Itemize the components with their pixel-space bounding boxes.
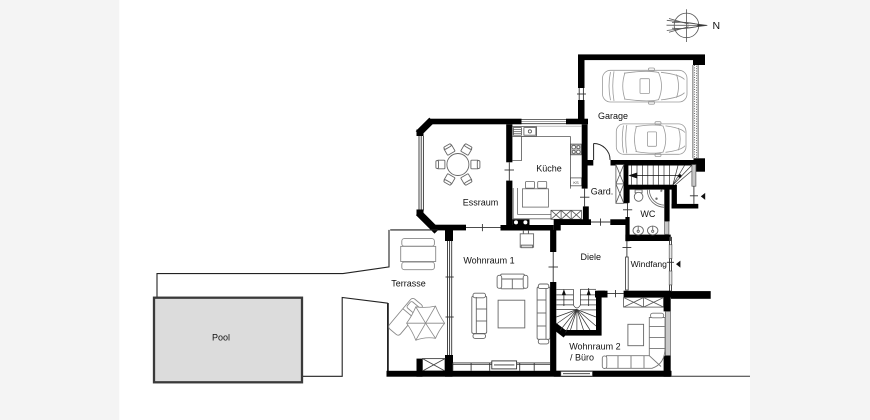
svg-text:WC: WC: [640, 209, 655, 219]
svg-text:*: *: [660, 188, 663, 197]
svg-text:Essraum: Essraum: [463, 198, 499, 208]
svg-text:Garage: Garage: [598, 111, 628, 121]
svg-text:Küche: Küche: [536, 164, 562, 174]
svg-text:Wohnraum 2: Wohnraum 2: [569, 342, 620, 352]
svg-text:Wohnraum 1: Wohnraum 1: [463, 256, 514, 266]
svg-text:KS: KS: [573, 180, 579, 185]
svg-text:Diele: Diele: [581, 252, 602, 262]
svg-text:Pool: Pool: [212, 332, 230, 342]
svg-text:Windfang: Windfang: [631, 259, 668, 269]
svg-text:N: N: [713, 20, 721, 32]
svg-text:Gard.: Gard.: [591, 187, 614, 197]
svg-text:Terrasse: Terrasse: [391, 278, 426, 288]
svg-text:/ Büro: / Büro: [570, 353, 594, 363]
